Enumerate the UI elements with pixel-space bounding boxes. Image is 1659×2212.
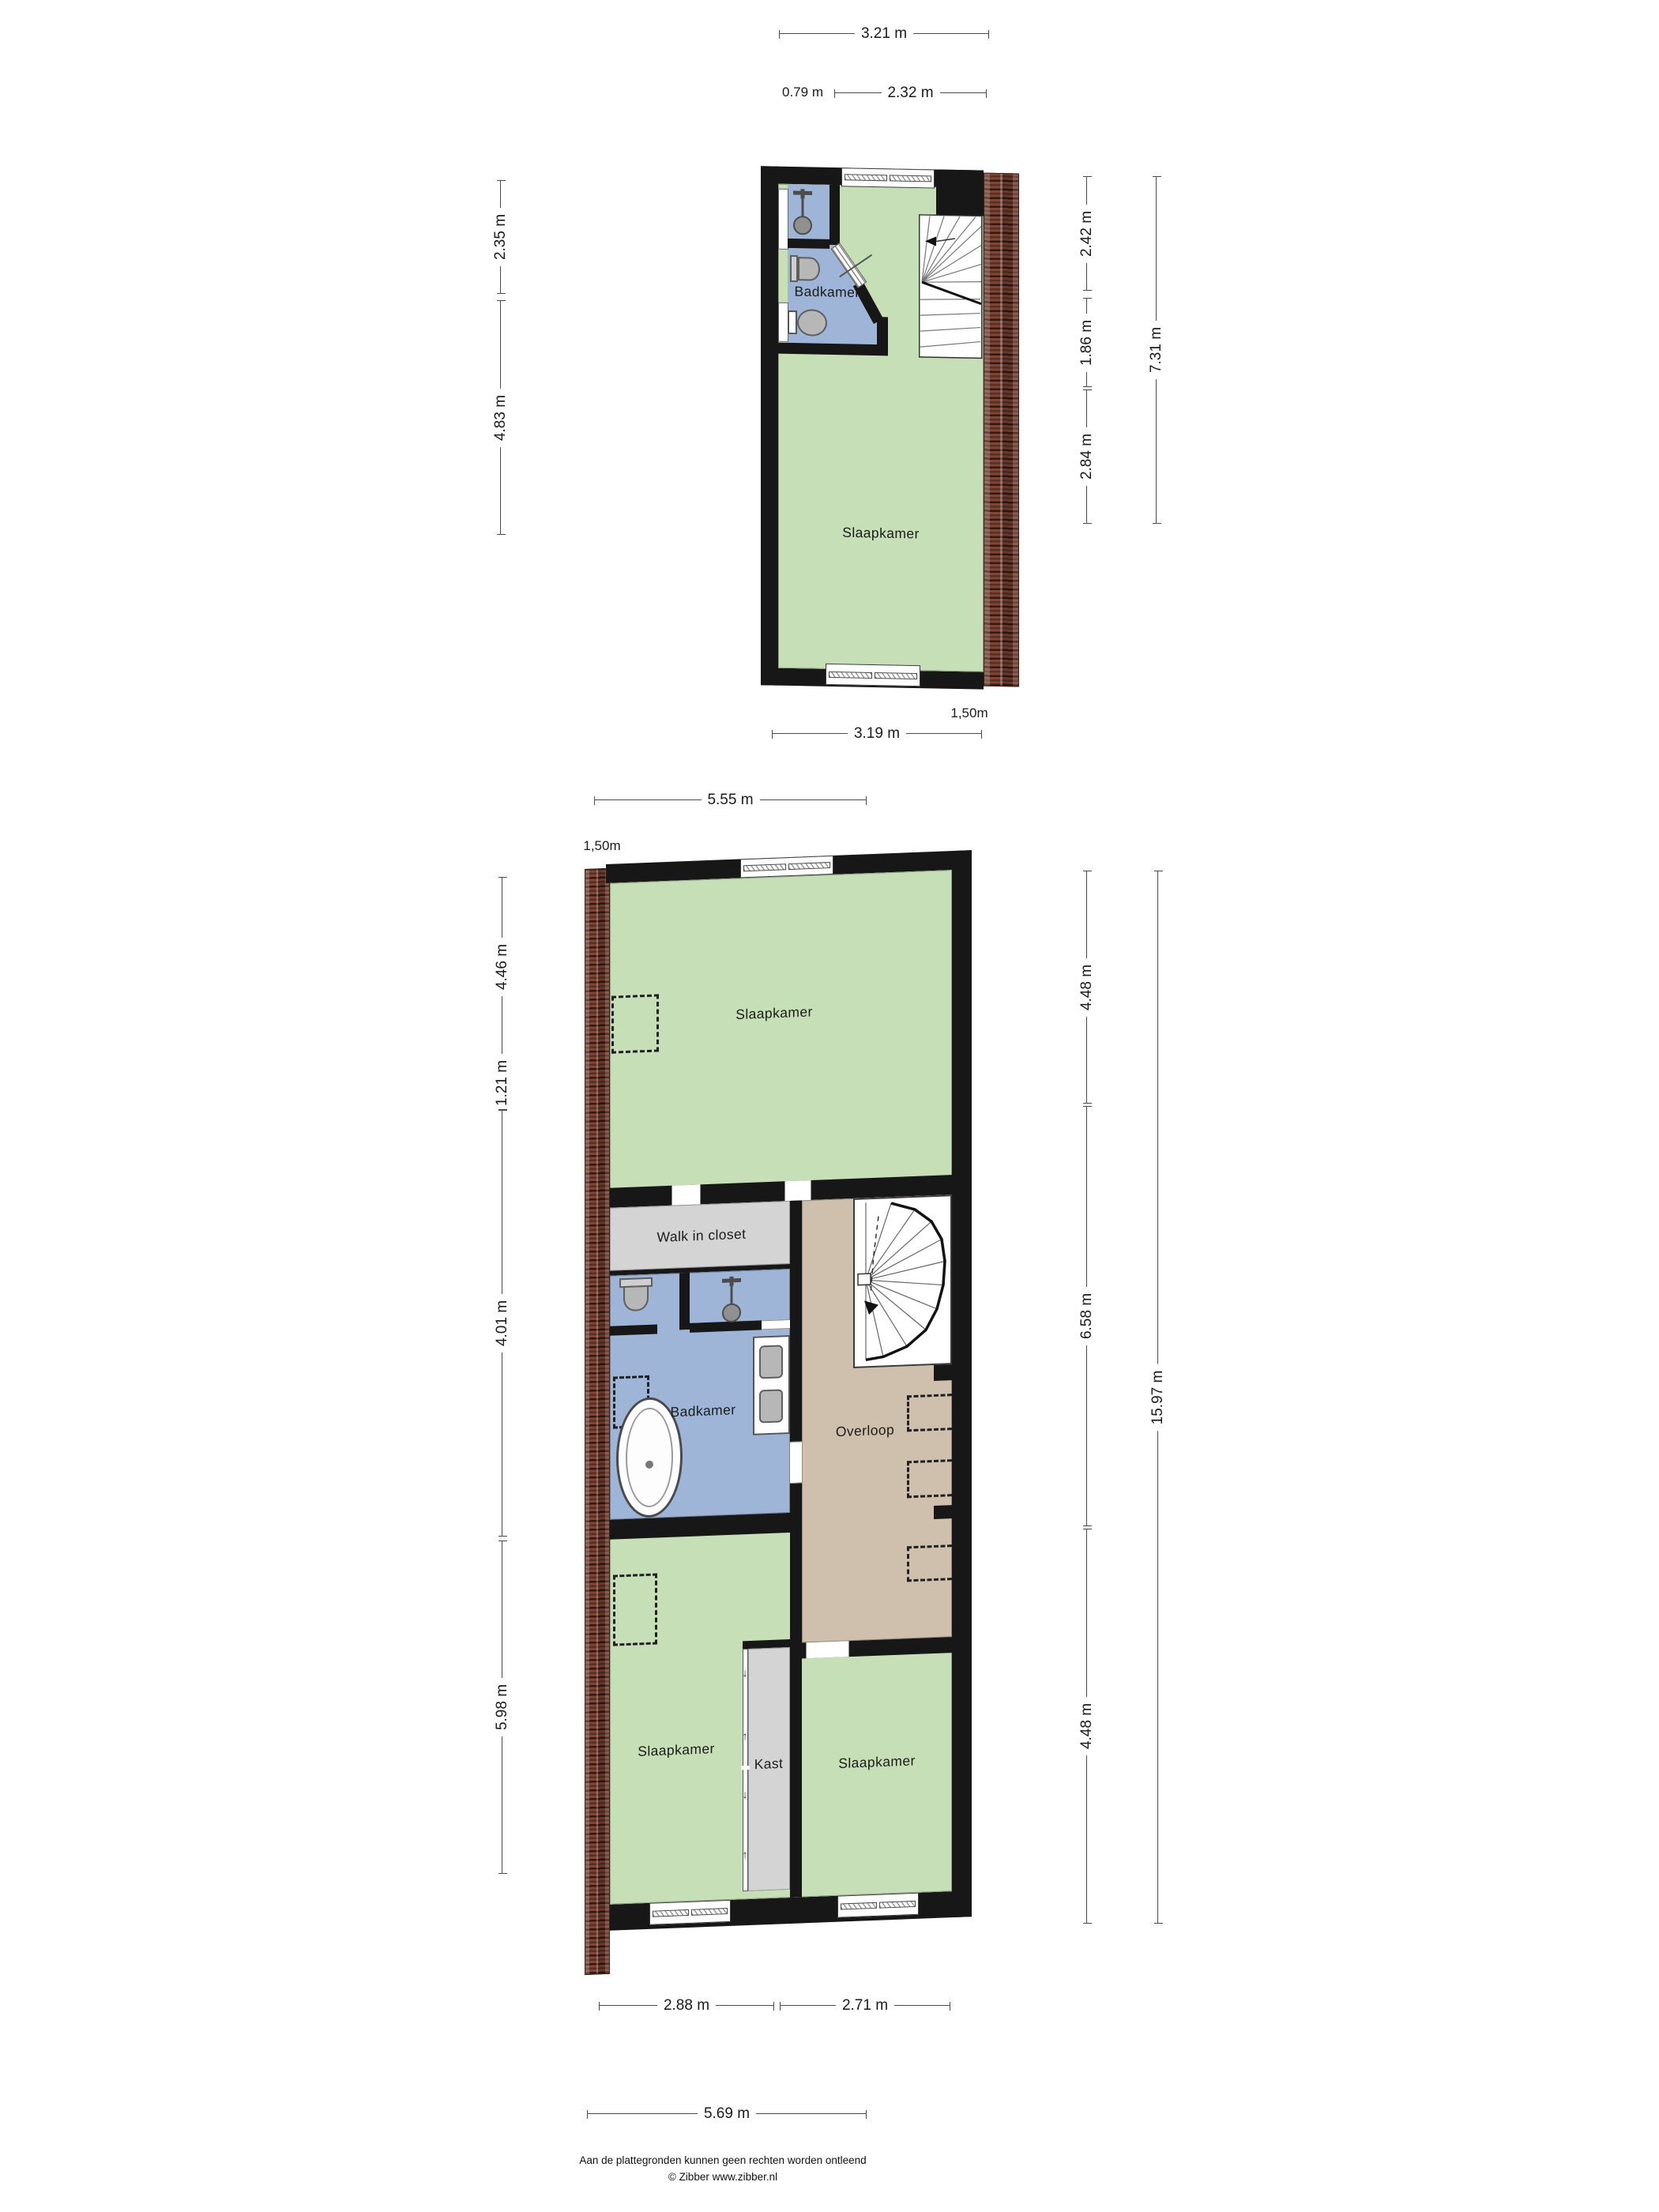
dim-attic-left-upper: 2.35 m: [500, 180, 501, 294]
window-pane: [841, 1902, 877, 1910]
window: [837, 1893, 919, 1918]
dim-attic-width-right: 2.32 m: [834, 92, 987, 93]
door-opening: [806, 1641, 849, 1658]
second-floorplan: ↓ ↑ ↓ ↑ Slaapkamer Walk in closet Badkam…: [585, 837, 1011, 1991]
attic-wall-left: [761, 166, 778, 685]
toilet-icon: [798, 257, 820, 281]
sliding-door-arrow-icon: ↓: [738, 1667, 752, 1679]
toilet-icon: [797, 309, 827, 337]
sink-icon: [759, 1389, 783, 1423]
dim-attic-width-left: 0.79 m: [780, 85, 826, 100]
wardrobe-dashed-outline: [907, 1394, 952, 1431]
window-pane: [788, 862, 831, 870]
dim-floor2-right-seg3: 4.48 m: [1086, 1529, 1087, 1924]
floor2-brick-roof-edge: [585, 868, 610, 1975]
window-pane: [743, 863, 786, 871]
dim-floor2-right-total: 15.97 m: [1157, 871, 1158, 1924]
door-opening: [784, 1180, 811, 1201]
attic-wall-block: [936, 170, 984, 216]
sliding-door-arrow-icon: ↑: [738, 1730, 752, 1742]
room-label-slaapkamer-right: Slaapkamer: [838, 1752, 915, 1772]
bathtub-inner: [626, 1407, 673, 1508]
wardrobe-dashed-outline: [907, 1459, 952, 1498]
sink-icon: [759, 1345, 783, 1379]
room-label-overloop: Overloop: [836, 1421, 894, 1440]
dim-floor2-left-seg1: 4.46 m: [502, 877, 502, 1056]
footer-disclaimer: Aan de plattegronden kunnen geen rechten…: [579, 2152, 866, 2169]
dim-floor2-bottom-left: 2.88 m: [599, 2005, 774, 2006]
window-pane: [829, 671, 872, 678]
room-label-slaapkamer-left: Slaapkamer: [638, 1740, 714, 1760]
spiral-stairs-icon: [853, 1194, 952, 1368]
window-pane: [845, 174, 887, 181]
dim-attic-right-total: 7.31 m: [1156, 176, 1157, 524]
dim-floor2-left-seg4: 5.98 m: [502, 1540, 502, 1874]
window: [841, 167, 935, 188]
dormer-dashed-outline: [613, 1573, 657, 1646]
footer-copyright: © Zibber www.zibber.nl: [579, 2169, 866, 2185]
dim-floor2-right-seg2: 6.58 m: [1086, 1106, 1087, 1526]
door-opening: [790, 1441, 802, 1484]
window-pane: [653, 1909, 689, 1917]
floor2-wall-vertical-lower: [790, 1532, 802, 1898]
room-label-badkamer: Badkamer: [795, 284, 860, 302]
door-opening: [671, 1184, 701, 1205]
dim-floor2-right-seg1: 4.48 m: [1086, 871, 1087, 1104]
attic-bathroom-wall-stub: [829, 185, 840, 245]
window-pane: [879, 1901, 916, 1909]
window-pane: [691, 1908, 728, 1916]
sliding-door-split: [741, 1766, 750, 1770]
room-label-walk-in-closet: Walk in closet: [657, 1226, 747, 1246]
dim-attic-right-seg2: 1.86 m: [1086, 298, 1087, 387]
dim-floor2-bottom-right: 2.71 m: [780, 2005, 950, 2006]
dim-floor2-bottom-total: 5.69 m: [587, 2113, 867, 2114]
window: [826, 664, 920, 687]
wall-notch: [934, 1505, 952, 1519]
toilet-niche-wall: [679, 1273, 690, 1330]
room-label-slaapkamer: Slaapkamer: [842, 525, 919, 543]
shower-icon: [788, 186, 817, 238]
room-label-slaapkamer-top: Slaapkamer: [735, 1003, 812, 1023]
window: [649, 1900, 731, 1925]
window-pane: [890, 175, 932, 182]
room-label-kast: Kast: [754, 1755, 784, 1773]
footer: Aan de plattegronden kunnen geen rechten…: [579, 2152, 866, 2185]
floorplan-page: { "attic": { "rooms": { "badkamer": "Bad…: [0, 0, 1659, 2212]
floor2-wall-right: [952, 850, 972, 1917]
dim-attic-width-total: 3.21 m: [779, 33, 989, 34]
winder-stairs-icon: [919, 214, 983, 359]
attic-bathroom-wall-bottom: [778, 343, 888, 356]
window: [740, 856, 833, 878]
toilet-niche-wall: [610, 1324, 657, 1335]
dim-attic-right-seg3: 2.84 m: [1086, 389, 1087, 524]
room-label-badkamer: Badkamer: [671, 1401, 736, 1420]
shower-icon: [717, 1273, 746, 1325]
window-pane: [875, 672, 918, 679]
dim-floor2-left-seg2: 1.21 m: [502, 1056, 502, 1110]
attic-bathroom-wall-lower: [877, 317, 888, 346]
dim-attic-bottom-width: 3.19 m: [772, 733, 982, 734]
dormer-dashed-outline: [611, 994, 659, 1053]
toilet-cistern: [790, 255, 798, 282]
wardrobe-dashed-outline: [907, 1544, 952, 1582]
floor2-knee-height-label: 1,50m: [581, 838, 623, 854]
attic-brick-roof-edge: [984, 173, 1019, 687]
dim-floor2-left-seg3: 4.01 m: [502, 1110, 502, 1537]
sliding-door-arrow-icon: ↓: [738, 1789, 752, 1800]
toilet-cistern: [788, 310, 797, 334]
wall-notch: [934, 1364, 952, 1381]
attic-knee-height-label: 1,50m: [948, 705, 990, 721]
attic-shower-divider-wall: [788, 239, 829, 249]
dim-floor2-top-width: 5.55 m: [594, 799, 867, 800]
dim-attic-left-lower: 4.83 m: [500, 300, 501, 535]
attic-floorplan: Badkamer Slaapkamer: [750, 162, 1063, 705]
dim-attic-right-seg1: 2.42 m: [1086, 176, 1087, 291]
sliding-door-arrow-icon: ↑: [738, 1849, 752, 1860]
shower-door-opening: [762, 1319, 790, 1330]
